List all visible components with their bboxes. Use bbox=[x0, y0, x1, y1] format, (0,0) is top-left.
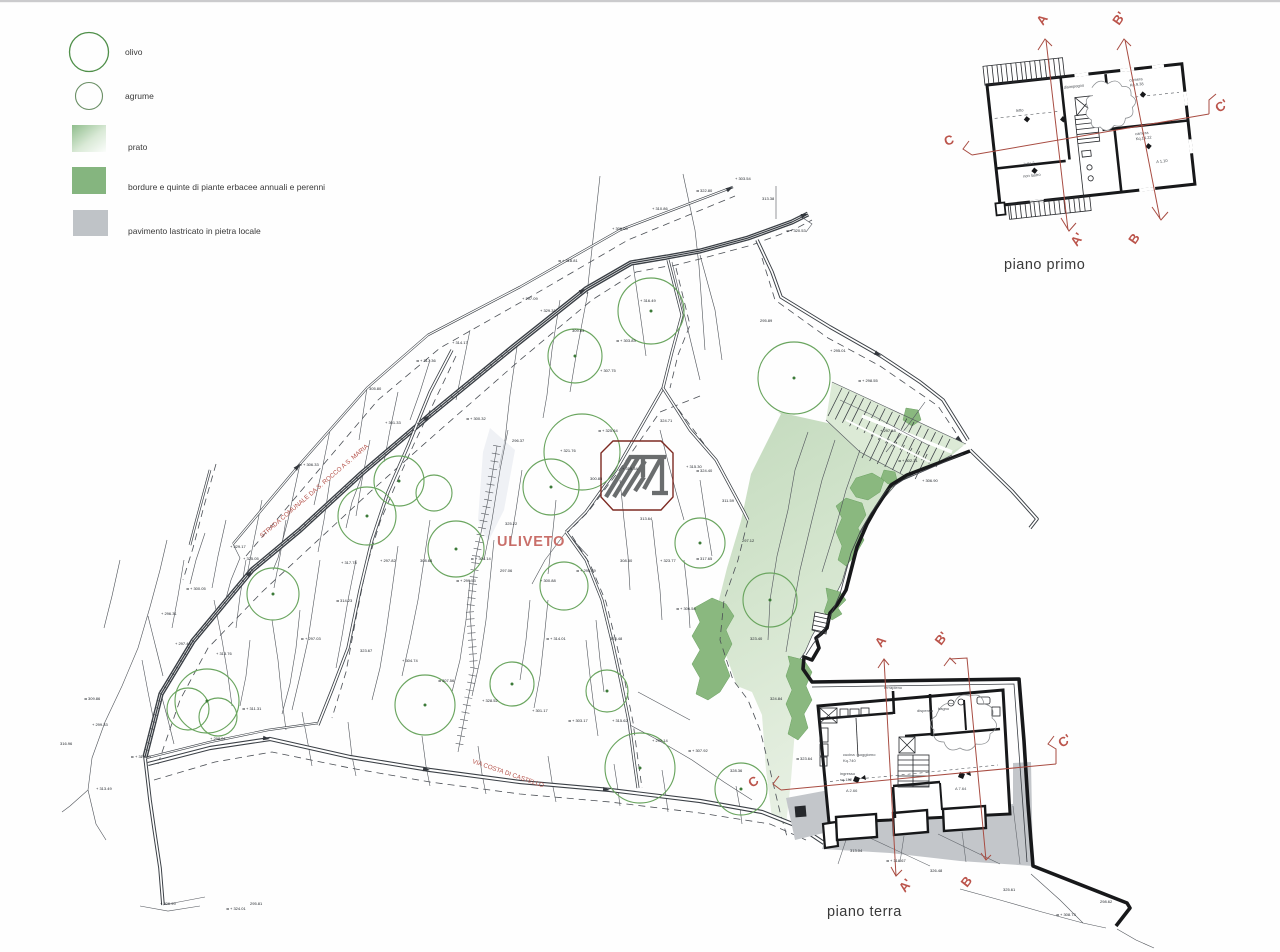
svg-text:+ 325.64: + 325.64 bbox=[602, 428, 618, 433]
svg-text:piano terra: piano terra bbox=[827, 904, 902, 920]
svg-text:+ 306.00: + 306.00 bbox=[612, 226, 628, 231]
svg-text:324.71: 324.71 bbox=[660, 418, 673, 423]
svg-text:317.65: 317.65 bbox=[700, 556, 713, 561]
svg-text:+ 299.33: + 299.33 bbox=[92, 722, 108, 727]
svg-text:+ 307.75: + 307.75 bbox=[600, 368, 616, 373]
svg-text:+ 300.32: + 300.32 bbox=[470, 416, 486, 421]
svg-text:+ 299.53: + 299.53 bbox=[460, 578, 476, 583]
svg-text:313.64: 313.64 bbox=[640, 516, 653, 521]
svg-text:+ 297.09: + 297.09 bbox=[522, 296, 538, 301]
svg-text:298.62: 298.62 bbox=[1100, 899, 1113, 904]
svg-text:A 7.64: A 7.64 bbox=[955, 786, 967, 791]
svg-text:309.63: 309.63 bbox=[572, 328, 585, 333]
svg-text:bordure e quinte di piante erb: bordure e quinte di piante erbacee annua… bbox=[128, 182, 325, 192]
svg-text:296.37: 296.37 bbox=[512, 438, 525, 443]
svg-text:+ 303.83: + 303.83 bbox=[620, 338, 636, 343]
svg-text:+ 306.99: + 306.99 bbox=[160, 901, 176, 906]
svg-text:+ 295.79: + 295.79 bbox=[580, 568, 596, 573]
svg-text:297.12: 297.12 bbox=[742, 538, 755, 543]
svg-text:+ 304.14: + 304.14 bbox=[475, 556, 491, 561]
svg-text:+ 307.92: + 307.92 bbox=[692, 748, 708, 753]
svg-text:+ 328.52: + 328.52 bbox=[482, 698, 498, 703]
svg-text:325.22: 325.22 bbox=[505, 521, 518, 526]
svg-text:323.40: 323.40 bbox=[750, 636, 763, 641]
svg-text:+ 313.76: + 313.76 bbox=[216, 651, 232, 656]
svg-text:297.06: 297.06 bbox=[500, 568, 513, 573]
svg-text:308.50: 308.50 bbox=[620, 558, 633, 563]
svg-text:+ 297.82: + 297.82 bbox=[380, 558, 396, 563]
svg-text:+ 319.34: + 319.34 bbox=[622, 466, 638, 471]
svg-text:+ 300.05: + 300.05 bbox=[190, 586, 206, 591]
svg-text:314.23: 314.23 bbox=[340, 598, 353, 603]
svg-text:+ 318.67: + 318.67 bbox=[890, 858, 906, 863]
svg-text:+ 301.33: + 301.33 bbox=[385, 420, 401, 425]
svg-text:311.59: 311.59 bbox=[722, 498, 735, 503]
svg-text:+ 298.55: + 298.55 bbox=[862, 378, 878, 383]
svg-text:+ 306.54: + 306.54 bbox=[680, 606, 696, 611]
svg-text:323.64: 323.64 bbox=[800, 756, 813, 761]
svg-text:+ 314.01: + 314.01 bbox=[550, 636, 566, 641]
svg-text:+ 315.62: + 315.62 bbox=[612, 718, 628, 723]
svg-text:letto: letto bbox=[1016, 107, 1025, 113]
svg-text:316.96: 316.96 bbox=[60, 741, 73, 746]
svg-text:323.67: 323.67 bbox=[360, 648, 373, 653]
svg-text:+ 298.01: + 298.01 bbox=[210, 736, 226, 741]
svg-text:+ 329.31: + 329.31 bbox=[540, 308, 556, 313]
svg-text:olivo: olivo bbox=[125, 47, 143, 57]
svg-text:cucina : soggiorno: cucina : soggiorno bbox=[843, 752, 876, 757]
svg-text:agrume: agrume bbox=[125, 91, 154, 101]
svg-text:prato: prato bbox=[128, 142, 148, 152]
svg-text:terrapieno: terrapieno bbox=[884, 685, 903, 690]
svg-text:+ 297.03: + 297.03 bbox=[305, 636, 321, 641]
svg-text:+ 323.77: + 323.77 bbox=[660, 558, 676, 563]
svg-text:sq.132: sq.132 bbox=[840, 777, 853, 782]
svg-text:326.48: 326.48 bbox=[930, 868, 943, 873]
svg-text:+ 329.17: + 329.17 bbox=[230, 544, 246, 549]
svg-text:313.48: 313.48 bbox=[610, 636, 623, 641]
svg-text:+ 306.33: + 306.33 bbox=[303, 462, 319, 467]
svg-text:+ 316.49: + 316.49 bbox=[640, 298, 656, 303]
svg-text:dispensa: dispensa bbox=[917, 708, 934, 713]
svg-text:piano primo: piano primo bbox=[1004, 257, 1085, 273]
svg-text:307.56: 307.56 bbox=[442, 678, 455, 683]
svg-text:pavimento lastricato in pietra: pavimento lastricato in pietra locale bbox=[128, 226, 261, 236]
svg-text:309.86: 309.86 bbox=[88, 696, 101, 701]
svg-text:322.80: 322.80 bbox=[700, 188, 713, 193]
svg-text:+ 313.49: + 313.49 bbox=[96, 786, 112, 791]
svg-text:+ 301.17: + 301.17 bbox=[532, 708, 548, 713]
svg-text:295.81: 295.81 bbox=[250, 901, 263, 906]
svg-text:328.36: 328.36 bbox=[730, 768, 743, 773]
svg-text:+ 325.05: + 325.05 bbox=[243, 556, 259, 561]
svg-text:313.04: 313.04 bbox=[850, 848, 863, 853]
svg-text:+ 321.76: + 321.76 bbox=[560, 448, 576, 453]
svg-text:+ 303.17: + 303.17 bbox=[572, 718, 588, 723]
svg-text:+ 324.01: + 324.01 bbox=[230, 906, 246, 911]
svg-text:bagno: bagno bbox=[938, 706, 950, 711]
svg-text:300.85: 300.85 bbox=[590, 476, 603, 481]
svg-text:+ 300.88: + 300.88 bbox=[540, 578, 556, 583]
svg-text:+ 297.18: + 297.18 bbox=[880, 428, 896, 433]
svg-text:+ 311.31: + 311.31 bbox=[246, 706, 262, 711]
svg-text:313.38: 313.38 bbox=[762, 196, 775, 201]
svg-text:A 2.66: A 2.66 bbox=[846, 788, 858, 793]
svg-text:ingresso: ingresso bbox=[840, 771, 856, 776]
svg-text:324.40: 324.40 bbox=[700, 468, 713, 473]
svg-text:+ 303.54: + 303.54 bbox=[735, 176, 751, 181]
svg-text:+ 308.73: + 308.73 bbox=[1060, 912, 1076, 917]
svg-text:ULIVETO: ULIVETO bbox=[497, 534, 565, 550]
svg-text:+ 317.78: + 317.78 bbox=[341, 560, 357, 565]
svg-text:+ 314.17: + 314.17 bbox=[452, 340, 468, 345]
svg-text:+ 310.86: + 310.86 bbox=[652, 206, 668, 211]
svg-text:+ 315.20: + 315.20 bbox=[135, 754, 151, 759]
svg-text:+ 304.74: + 304.74 bbox=[402, 658, 418, 663]
svg-text:+ 295.14: + 295.14 bbox=[652, 738, 668, 743]
svg-text:325.61: 325.61 bbox=[1003, 887, 1016, 892]
svg-text:+ 320.53: + 320.53 bbox=[790, 228, 806, 233]
svg-text:+ 302.31: + 302.31 bbox=[902, 458, 918, 463]
svg-text:+ 306.90: + 306.90 bbox=[922, 478, 938, 483]
svg-text:+ 317.36: + 317.36 bbox=[420, 358, 436, 363]
svg-text:305.80: 305.80 bbox=[369, 386, 382, 391]
svg-text:+ 297.44: + 297.44 bbox=[175, 641, 191, 646]
svg-text:+ 295.01: + 295.01 bbox=[830, 348, 846, 353]
svg-text:324.84: 324.84 bbox=[770, 696, 783, 701]
svg-text:295.89: 295.89 bbox=[760, 318, 773, 323]
svg-text:Kq.740: Kq.740 bbox=[843, 758, 856, 763]
svg-text:+ 296.31: + 296.31 bbox=[161, 611, 177, 616]
svg-text:+ 318.81: + 318.81 bbox=[562, 258, 578, 263]
svg-text:308.68: 308.68 bbox=[420, 558, 433, 563]
